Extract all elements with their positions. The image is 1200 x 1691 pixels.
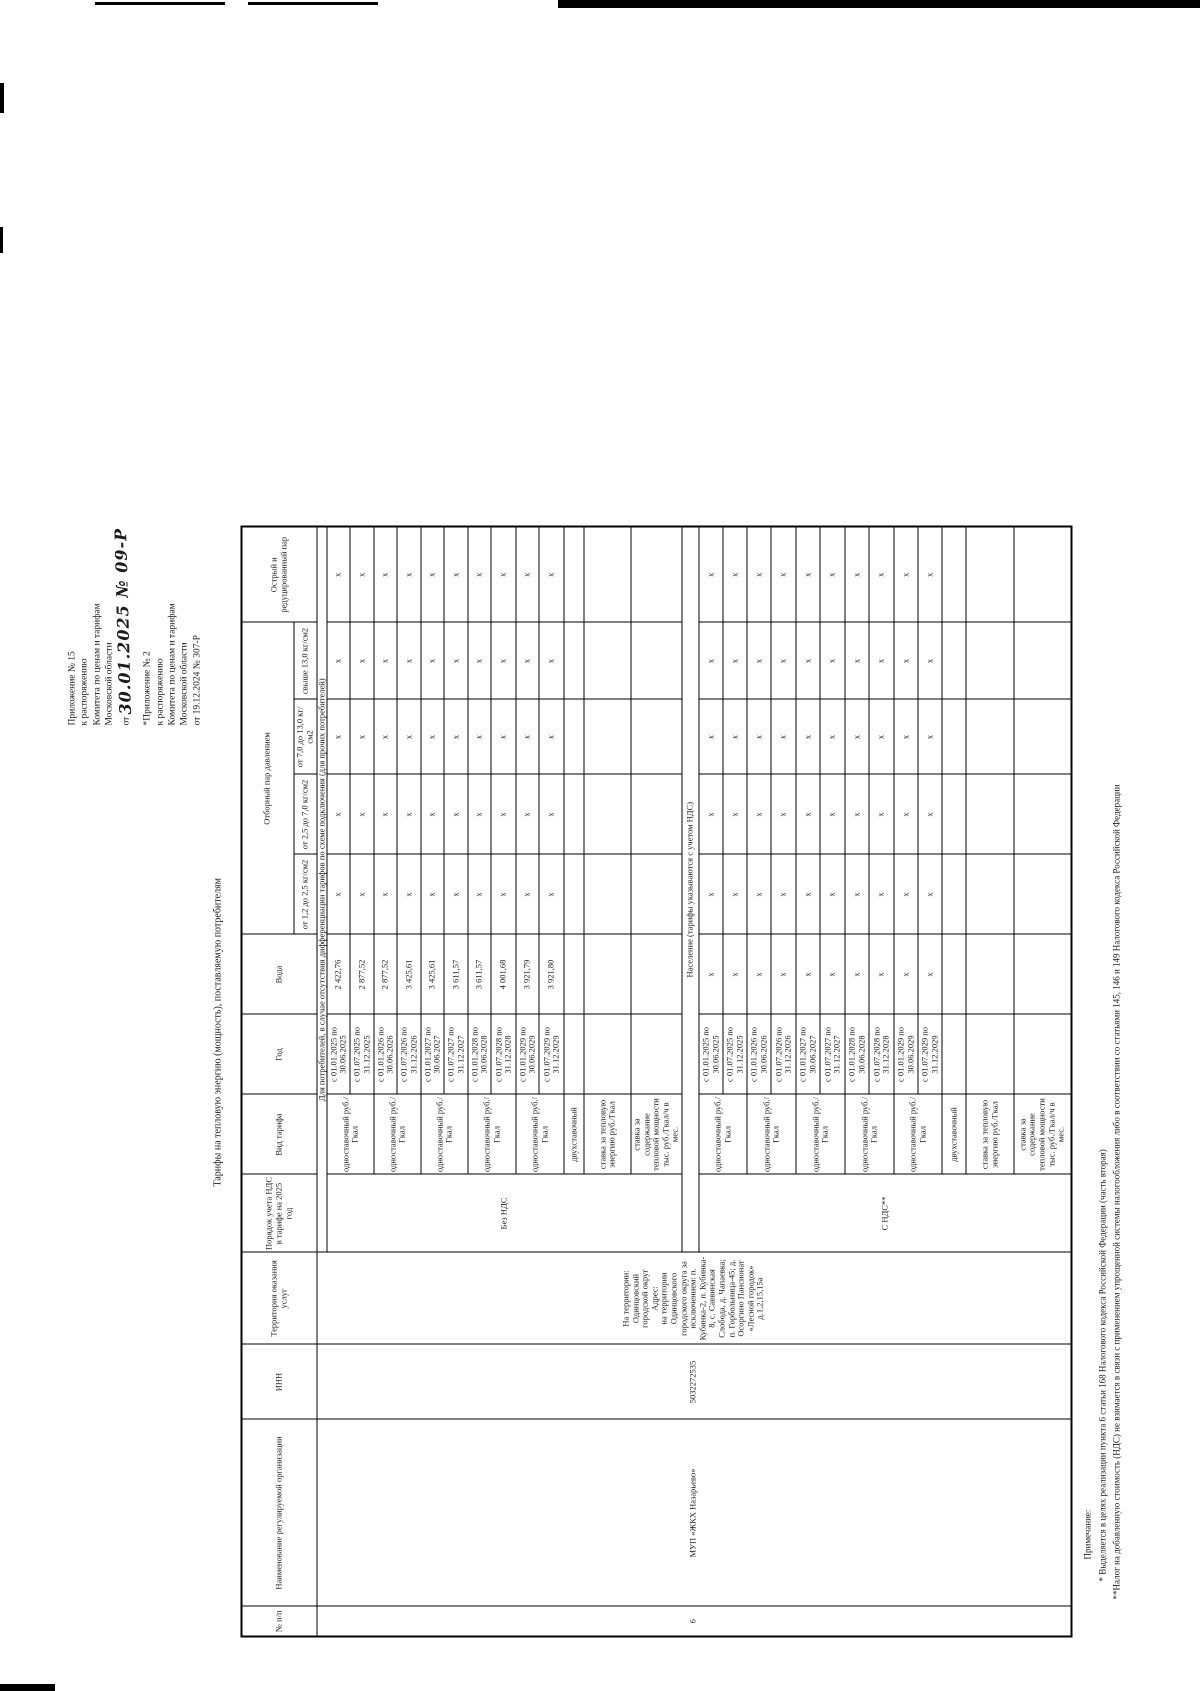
x-mark: x: [796, 622, 820, 699]
x-mark: x: [516, 699, 539, 774]
period-date: с 01.01.2029 по 30.06.2029: [516, 1014, 539, 1094]
x-mark: x: [699, 774, 723, 854]
empty-cell: [1014, 854, 1071, 934]
empty-cell: [631, 934, 682, 1014]
empty-cell: [1014, 1014, 1071, 1094]
empty-cell: [966, 934, 1014, 1014]
x-mark: x: [747, 854, 771, 934]
footnote-line: **Налог на добавленную стоимость (НДС) н…: [1109, 784, 1124, 1599]
header-territory: Территория оказания услуг: [241, 1252, 316, 1344]
header-vat: Порядок учета НДС в тарифе на 2025 год: [241, 1174, 316, 1252]
x-mark: x: [397, 622, 421, 699]
x-mark: x: [444, 699, 468, 774]
x-mark: x: [421, 699, 444, 774]
water-value: 3 921,79: [516, 934, 539, 1014]
x-mark: x: [771, 854, 796, 934]
header-water: Вода: [241, 934, 316, 1014]
scan-edge-artifact: [0, 227, 3, 253]
period-date: с 01.07.2027 по 31.12.2027: [444, 1014, 468, 1094]
empty-cell: [966, 774, 1014, 854]
tariff-type-cell: одноставочный руб./Гкал: [894, 1094, 942, 1174]
territory-line: городской округ: [640, 1254, 650, 1343]
x-mark: x: [374, 622, 397, 699]
period-date: с 01.07.2028 по 31.12.2028: [869, 1014, 894, 1094]
x-mark: x: [468, 622, 491, 699]
x-mark: x: [869, 699, 894, 774]
x-mark: x: [539, 854, 564, 934]
water-value: 3 425,61: [397, 934, 421, 1014]
empty-cell: [584, 934, 631, 1014]
x-mark: x: [491, 699, 516, 774]
x-mark: x: [516, 854, 539, 934]
x-mark: x: [539, 699, 564, 774]
period-date: с 01.01.2028 по 30.06.2028: [845, 1014, 869, 1094]
date-prefix: от: [121, 716, 131, 725]
x-mark: x: [796, 934, 820, 1014]
appendix-line: Приложение № 15: [66, 527, 78, 725]
x-mark: x: [894, 622, 918, 699]
header-steam-group: Отборный пар давлением: [241, 622, 293, 934]
empty-cell: [631, 699, 682, 774]
header-num: № п/п: [241, 1606, 316, 1636]
x-mark: x: [397, 699, 421, 774]
x-mark: x: [327, 854, 350, 934]
header-org: Наименование регулируемой организации: [241, 1419, 316, 1606]
x-mark: x: [918, 699, 942, 774]
x-mark: x: [421, 854, 444, 934]
header-steam-3: от 7,0 до 13,0 кг/см2: [293, 699, 316, 774]
x-mark: x: [796, 774, 820, 854]
tariff-type-cell: одноставочный руб./Гкал: [796, 1094, 845, 1174]
appendix-line: Комитета по ценам и тарифам: [166, 527, 178, 725]
tariff-type-cell: одноставочный руб./Гкал: [845, 1094, 894, 1174]
tariff-type-cell: ставка за тепловую энергию руб./Гкал: [966, 1094, 1014, 1174]
tariff-type-cell: двухставочный: [564, 1094, 584, 1174]
x-mark: x: [350, 699, 374, 774]
empty-cell: [942, 1014, 966, 1094]
x-mark: x: [444, 526, 468, 622]
empty-cell: [966, 526, 1014, 622]
x-mark: x: [894, 526, 918, 622]
empty-cell: [584, 622, 631, 699]
x-mark: x: [894, 774, 918, 854]
x-mark: x: [747, 526, 771, 622]
territory-value: На территории: Одинцовский городской окр…: [316, 1252, 1071, 1344]
empty-cell: [631, 854, 682, 934]
period-date: с 01.01.2026 по 30.06.2026: [747, 1014, 771, 1094]
header-sharp-steam: Острый и редуцированный пар: [241, 526, 316, 622]
x-mark: x: [397, 774, 421, 854]
x-mark: x: [516, 774, 539, 854]
water-value: 3 425,61: [421, 934, 444, 1014]
x-mark: x: [468, 854, 491, 934]
x-mark: x: [869, 526, 894, 622]
x-mark: x: [723, 854, 747, 934]
territory-line: Осоргино Пансионат: [736, 1254, 746, 1343]
water-value: 3 921,80: [539, 934, 564, 1014]
tariff-type-cell: одноставочный руб./Гкал: [421, 1094, 468, 1174]
header-row-1: № п/п Наименование регулируемой организа…: [241, 526, 293, 1636]
period-date: с 01.07.2026 по 31.12.2026: [771, 1014, 796, 1094]
tariff-table: № п/п Наименование регулируемой организа…: [240, 525, 1072, 1637]
x-mark: x: [845, 526, 869, 622]
x-mark: x: [869, 934, 894, 1014]
footnote-line: * Выделяется в целях реализации пункта 6…: [1095, 784, 1110, 1581]
appendix-line: *Приложение № 2: [141, 527, 153, 725]
x-mark: x: [796, 699, 820, 774]
x-mark: x: [539, 774, 564, 854]
x-mark: x: [350, 854, 374, 934]
empty-cell: [564, 699, 584, 774]
inn-value: 5032272535: [316, 1344, 1071, 1419]
x-mark: x: [491, 526, 516, 622]
x-mark: x: [491, 854, 516, 934]
x-mark: x: [918, 622, 942, 699]
tariff-type-cell: одноставочный руб./Гкал: [699, 1094, 747, 1174]
x-mark: x: [820, 934, 845, 1014]
header-inn: ИНН: [241, 1344, 316, 1419]
x-mark: x: [918, 526, 942, 622]
x-mark: x: [820, 622, 845, 699]
x-mark: x: [421, 622, 444, 699]
section1-header: Для потребителей, в случае отсутствия ди…: [316, 526, 327, 1252]
x-mark: x: [327, 699, 350, 774]
period-date: с 01.01.2027 по 30.06.2027: [421, 1014, 444, 1094]
x-mark: x: [918, 774, 942, 854]
empty-cell: [564, 854, 584, 934]
tariff-type-cell: ставка за содержание тепловой мощности т…: [631, 1094, 682, 1174]
empty-cell: [1014, 934, 1071, 1014]
period-date: с 01.01.2029 по 30.06.2029: [894, 1014, 918, 1094]
water-value: 4 001,68: [491, 934, 516, 1014]
header-year: Год: [241, 1014, 316, 1094]
x-mark: x: [894, 699, 918, 774]
x-mark: x: [699, 699, 723, 774]
period-date: с 01.07.2025 по 31.12.2025: [723, 1014, 747, 1094]
vat-mode-section2: С НДС**: [699, 1174, 1071, 1252]
scan-edge-artifact: [248, 2, 378, 5]
x-mark: x: [894, 934, 918, 1014]
x-mark: x: [918, 854, 942, 934]
x-mark: x: [350, 774, 374, 854]
x-mark: x: [723, 622, 747, 699]
footnote-title: Примечание:: [1080, 784, 1095, 1559]
period-date: с 01.07.2028 по 31.12.2028: [491, 1014, 516, 1094]
x-mark: x: [723, 526, 747, 622]
period-date: с 01.07.2029 по 31.12.2029: [539, 1014, 564, 1094]
period-date: с 01.01.2025 по 30.06.2025: [327, 1014, 350, 1094]
empty-cell: [631, 622, 682, 699]
x-mark: x: [747, 699, 771, 774]
x-mark: x: [869, 622, 894, 699]
row-num-value: 6: [316, 1606, 1071, 1636]
rotated-landscape-content: Приложение № 15 к распоряжению Комитета …: [0, 0, 1200, 1691]
table-title: Тарифы на тепловую энергию (мощность), п…: [212, 877, 223, 1186]
appendix-line: Комитета по ценам и тарифам: [91, 527, 103, 725]
empty-cell: [942, 526, 966, 622]
x-mark: x: [374, 526, 397, 622]
empty-cell: [1014, 622, 1071, 699]
x-mark: x: [444, 854, 468, 934]
empty-cell: [1014, 774, 1071, 854]
empty-cell: [631, 774, 682, 854]
tariff-type-cell: одноставочный руб./Гкал: [374, 1094, 421, 1174]
empty-cell: [1014, 699, 1071, 774]
empty-cell: [584, 1014, 631, 1094]
x-mark: x: [771, 699, 796, 774]
x-mark: x: [771, 774, 796, 854]
x-mark: x: [723, 934, 747, 1014]
x-mark: x: [820, 526, 845, 622]
x-mark: x: [845, 622, 869, 699]
x-mark: x: [327, 526, 350, 622]
empty-cell: [584, 699, 631, 774]
appendix-line: к распоряжению: [78, 527, 90, 725]
x-mark: x: [845, 774, 869, 854]
period-date: с 01.07.2025 по 31.12.2025: [350, 1014, 374, 1094]
x-mark: x: [845, 854, 869, 934]
x-mark: x: [397, 854, 421, 934]
x-mark: x: [397, 526, 421, 622]
section2-header: Население (тарифы указываются с учетом Н…: [682, 526, 699, 1252]
x-mark: x: [491, 774, 516, 854]
empty-cell: [966, 699, 1014, 774]
scanned-document-page: Приложение № 15 к распоряжению Комитета …: [0, 0, 1200, 1691]
empty-cell: [942, 622, 966, 699]
x-mark: x: [350, 622, 374, 699]
scan-edge-artifact: [0, 83, 4, 113]
tariff-type-cell: одноставочный руб./Гкал: [516, 1094, 564, 1174]
empty-cell: [966, 622, 1014, 699]
period-date: с 01.07.2027 по 31.12.2027: [820, 1014, 845, 1094]
x-mark: x: [539, 526, 564, 622]
scan-edge-artifact: [95, 2, 225, 5]
empty-cell: [564, 774, 584, 854]
water-value: 2 877,52: [350, 934, 374, 1014]
x-mark: x: [468, 774, 491, 854]
period-date: с 01.01.2027 по 30.06.2027: [796, 1014, 820, 1094]
appendix-date-line: от 30.01.2025 № 09-Р: [117, 527, 132, 725]
territory-line: исключением: п.: [688, 1254, 698, 1343]
x-mark: x: [723, 774, 747, 854]
territory-line: Слобода, д. Чапаевка;: [717, 1254, 727, 1343]
x-mark: x: [845, 699, 869, 774]
x-mark: x: [421, 526, 444, 622]
tariff-type-cell: ставка за тепловую энергию руб./Гкал: [584, 1094, 631, 1174]
x-mark: x: [747, 622, 771, 699]
x-mark: x: [374, 774, 397, 854]
x-mark: x: [516, 622, 539, 699]
header-steam-1: от 1,2 до 2,5 кг/см2: [293, 854, 316, 934]
empty-cell: [631, 1014, 682, 1094]
territory-line: На территории:: [621, 1254, 631, 1343]
x-mark: x: [444, 774, 468, 854]
x-mark: x: [699, 934, 723, 1014]
x-mark: x: [894, 854, 918, 934]
empty-cell: [584, 854, 631, 934]
empty-cell: [584, 526, 631, 622]
x-mark: x: [491, 622, 516, 699]
x-mark: x: [444, 622, 468, 699]
x-mark: x: [374, 699, 397, 774]
section1-header-row: 6 МУП «ЖКХ Назарьево» 5032272535 На терр…: [316, 526, 327, 1636]
appendix-line: к распоряжению: [154, 527, 166, 725]
footnotes: Примечание: * Выделяется в целях реализа…: [1080, 784, 1124, 1599]
x-mark: x: [421, 774, 444, 854]
empty-cell: [564, 1014, 584, 1094]
x-mark: x: [820, 774, 845, 854]
water-value: 3 611,57: [444, 934, 468, 1014]
x-mark: x: [747, 934, 771, 1014]
empty-cell: [1014, 526, 1071, 622]
x-mark: x: [699, 526, 723, 622]
x-mark: x: [820, 854, 845, 934]
water-value: 2 877,52: [374, 934, 397, 1014]
tariff-type-cell: одноставочный руб./Гкал: [747, 1094, 796, 1174]
territory-line: Одинцовского: [669, 1254, 679, 1343]
empty-cell: [966, 1014, 1014, 1094]
empty-cell: [942, 934, 966, 1014]
period-date: с 01.01.2028 по 30.06.2028: [468, 1014, 491, 1094]
empty-cell: [584, 774, 631, 854]
empty-cell: [564, 526, 584, 622]
period-date: с 01.07.2029 по 31.12.2029: [918, 1014, 942, 1094]
header-steam-2: от 2,5 до 7,0 кг/см2: [293, 774, 316, 854]
period-date: с 01.01.2025 по 30.06.2025: [699, 1014, 723, 1094]
x-mark: x: [468, 699, 491, 774]
x-mark: x: [468, 526, 491, 622]
empty-cell: [564, 934, 584, 1014]
handwritten-date: 30.01.2025 № 09-Р: [115, 527, 132, 714]
tariff-type-cell: одноставочный руб./Гкал: [327, 1094, 374, 1174]
scan-edge-artifact: [0, 1684, 55, 1691]
appendix-line: от 19.12.2024 № 307-Р: [191, 527, 203, 725]
x-mark: x: [796, 526, 820, 622]
period-date: с 01.07.2026 по 31.12.2026: [397, 1014, 421, 1094]
x-mark: x: [771, 622, 796, 699]
x-mark: x: [350, 526, 374, 622]
territory-line: д.1,2,15,15а: [755, 1254, 765, 1343]
x-mark: x: [820, 699, 845, 774]
x-mark: x: [869, 854, 894, 934]
tariff-type-cell: одноставочный руб./Гкал: [468, 1094, 516, 1174]
x-mark: x: [539, 622, 564, 699]
x-mark: x: [699, 854, 723, 934]
empty-cell: [564, 622, 584, 699]
empty-cell: [942, 774, 966, 854]
x-mark: x: [723, 699, 747, 774]
org-name-value: МУП «ЖКХ Назарьево»: [316, 1419, 1071, 1606]
tariff-type-cell: двухставочный: [942, 1094, 966, 1174]
x-mark: x: [918, 934, 942, 1014]
x-mark: x: [771, 526, 796, 622]
empty-cell: [966, 854, 1014, 934]
header-steam-4: свыше 13,0 кг/см2: [293, 622, 316, 699]
x-mark: x: [374, 854, 397, 934]
x-mark: x: [845, 934, 869, 1014]
x-mark: x: [516, 526, 539, 622]
x-mark: x: [869, 774, 894, 854]
x-mark: x: [327, 774, 350, 854]
appendix-annotations: Приложение № 15 к распоряжению Комитета …: [66, 527, 203, 725]
scan-edge-artifact: [558, 0, 1200, 8]
x-mark: x: [796, 854, 820, 934]
x-mark: x: [771, 934, 796, 1014]
x-mark: x: [747, 774, 771, 854]
water-value: 2 422,76: [327, 934, 350, 1014]
water-value: 3 611,57: [468, 934, 491, 1014]
empty-cell: [942, 854, 966, 934]
header-tariff-type: Вид тарифа: [241, 1094, 316, 1174]
empty-cell: [631, 526, 682, 622]
x-mark: x: [327, 622, 350, 699]
vat-mode-section1: Без НДС: [327, 1174, 682, 1252]
appendix-line: Московской области: [178, 527, 190, 725]
period-date: с 01.01.2026 по 30.06.2026: [374, 1014, 397, 1094]
x-mark: x: [699, 622, 723, 699]
empty-cell: [942, 699, 966, 774]
tariff-type-cell: ставка за содержание тепловой мощности т…: [1014, 1094, 1071, 1174]
